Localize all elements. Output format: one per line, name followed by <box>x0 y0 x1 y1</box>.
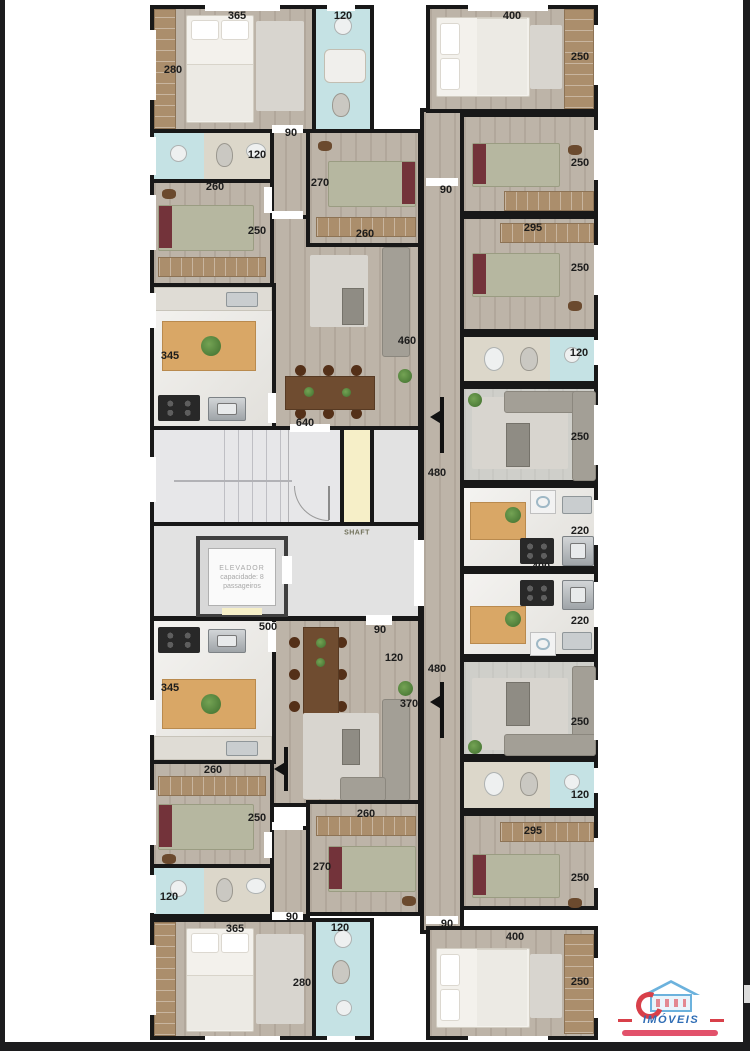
bedroom-rug <box>256 21 304 111</box>
dimension-label: 295 <box>524 222 542 234</box>
staircase <box>150 426 346 526</box>
scrollbar-thumb[interactable] <box>744 985 750 1003</box>
dimension-label: 260 <box>356 228 374 240</box>
stool <box>568 301 582 311</box>
dimension-label: 400 <box>532 561 550 573</box>
plant-icon <box>468 740 482 754</box>
dimension-label: 270 <box>311 177 329 189</box>
dimension-label: 270 <box>313 861 331 873</box>
single-bed <box>328 846 416 892</box>
bed-headboard <box>473 855 486 895</box>
window <box>594 340 602 365</box>
entry-arrow-icon <box>430 694 443 710</box>
toilet <box>216 143 233 167</box>
door-leaf <box>328 486 330 520</box>
elevator-label: ELEVADOR <box>219 565 265 572</box>
double-bed <box>436 948 530 1028</box>
door-gap <box>264 187 272 213</box>
plant-icon <box>398 681 413 696</box>
oven <box>562 580 594 610</box>
kitchen-bottom-right <box>460 570 598 658</box>
wardrobe <box>158 257 266 277</box>
stool <box>568 898 582 908</box>
dimension-label: 295 <box>524 825 542 837</box>
window <box>594 500 602 545</box>
window <box>148 30 156 100</box>
stair-rail <box>174 480 292 482</box>
pillow <box>440 954 460 986</box>
pillow <box>191 20 219 40</box>
dimension-label: 480 <box>428 663 446 675</box>
dining-table <box>303 627 339 725</box>
window <box>594 768 602 793</box>
dimension-label: 365 <box>226 923 244 935</box>
toilet <box>520 772 538 796</box>
window <box>594 405 602 465</box>
dimension-label: 220 <box>571 525 589 537</box>
bathroom-top-right <box>460 333 598 385</box>
dimension-label: 120 <box>570 347 588 359</box>
kitchen-sink <box>562 496 592 514</box>
bedroom-master-bottom-left <box>150 918 316 1040</box>
dimension-label: 250 <box>571 262 589 274</box>
toilet <box>332 93 350 117</box>
bathroom-bottom-right <box>460 758 598 812</box>
living-dining-room-top-left <box>270 215 422 430</box>
wardrobe <box>500 822 594 842</box>
door-gap <box>268 393 276 423</box>
dining-table <box>285 376 375 410</box>
bathtub <box>324 49 366 83</box>
window <box>148 875 156 913</box>
single-bed <box>328 161 416 207</box>
realtor-logo: IMÓVEIS <box>612 980 730 1042</box>
dimension-label: 260 <box>206 181 224 193</box>
dimension-label: 460 <box>398 335 416 347</box>
dimension-label: 120 <box>385 652 403 664</box>
dining-chair <box>323 365 334 376</box>
bed-headboard <box>159 805 172 847</box>
bedroom-rug <box>530 25 562 89</box>
plant-icon <box>201 336 221 356</box>
plant-icon <box>505 507 521 523</box>
double-bed <box>186 15 254 123</box>
kitchen-sink <box>562 632 592 650</box>
dimension-label: 345 <box>161 682 179 694</box>
stool <box>318 141 332 151</box>
dimension-label: 120 <box>571 789 589 801</box>
bed-headboard <box>159 206 172 248</box>
elevator: ELEVADOR capacidade: 8 passageiros <box>196 536 288 618</box>
window <box>594 958 602 1018</box>
toilet <box>216 878 233 902</box>
blanket <box>477 18 527 95</box>
dimension-label: 220 <box>571 615 589 627</box>
single-bed <box>472 854 560 898</box>
door-gap <box>414 540 424 606</box>
window <box>148 700 156 735</box>
window <box>594 130 602 180</box>
stair-wall-line <box>288 430 289 522</box>
door-gap <box>272 822 303 830</box>
stool <box>568 145 582 155</box>
dimension-label: 120 <box>248 149 266 161</box>
shower-head <box>170 145 187 162</box>
dimension-label: 250 <box>571 157 589 169</box>
dimension-label: 250 <box>571 716 589 728</box>
plant-icon <box>201 694 221 714</box>
dimension-label: 365 <box>228 10 246 22</box>
dimension-label: 280 <box>293 977 311 989</box>
stool <box>402 896 416 906</box>
elevator-capacity: capacidade: 8 <box>220 574 264 581</box>
dimension-label: 640 <box>296 417 314 429</box>
elevator-cab: ELEVADOR capacidade: 8 passageiros <box>208 548 276 606</box>
plant-icon <box>505 611 521 627</box>
plant-icon <box>468 393 482 407</box>
double-bed <box>186 928 254 1032</box>
bed-headboard <box>473 254 486 294</box>
dining-chair <box>289 637 300 648</box>
washing-machine <box>530 632 556 656</box>
dimension-label: 280 <box>164 64 182 76</box>
oven <box>208 629 246 653</box>
bedroom-rug <box>530 954 562 1018</box>
dimension-label: 90 <box>441 918 453 930</box>
tv-unit <box>506 682 530 726</box>
window <box>594 245 602 295</box>
door-swing-arc <box>294 486 329 521</box>
pillow <box>191 933 219 953</box>
sink <box>484 772 504 796</box>
living-dining-room-bottom-left <box>270 617 422 807</box>
elevator-passengers: passageiros <box>223 583 261 590</box>
plant-icon <box>316 658 325 667</box>
window <box>148 293 156 328</box>
bathroom-bottom-left-1 <box>312 918 374 1040</box>
kitchen-table <box>470 606 526 644</box>
dimension-label: 90 <box>374 624 386 636</box>
shower-head <box>336 1000 352 1016</box>
dimension-label: 500 <box>259 621 277 633</box>
wardrobe <box>500 223 594 243</box>
bed-headboard <box>402 162 415 204</box>
double-bed <box>436 17 530 97</box>
single-bed <box>472 253 560 297</box>
dimension-label: 345 <box>161 350 179 362</box>
wardrobe <box>504 191 594 211</box>
toilet <box>332 960 350 984</box>
dimension-label: 250 <box>248 812 266 824</box>
window <box>148 195 156 250</box>
pillow <box>440 989 460 1021</box>
dimension-label: 400 <box>503 10 521 22</box>
shower-head <box>564 774 580 790</box>
shaft-label: SHAFT <box>344 530 370 537</box>
elevator-sill <box>222 608 262 615</box>
stove <box>158 627 200 653</box>
tv-unit <box>506 423 530 467</box>
oven <box>208 397 246 421</box>
dining-chair <box>289 669 300 680</box>
dimension-label: 400 <box>506 931 524 943</box>
dimension-label: 250 <box>248 225 266 237</box>
blanket <box>477 949 527 1026</box>
dimension-label: 120 <box>160 891 178 903</box>
washing-machine <box>530 490 556 514</box>
landing-upper <box>370 426 422 526</box>
tv-unit <box>342 288 364 325</box>
floorplan-image: SHAFT ELEVADOR capacidade: 8 passageiros <box>0 0 750 1051</box>
elevator-door-gap <box>282 556 292 584</box>
sofa-corner <box>504 734 596 756</box>
entry-arrow-icon <box>430 409 443 425</box>
single-bed <box>158 804 254 850</box>
door-gap <box>264 832 272 858</box>
kitchen-sink <box>226 741 258 756</box>
bed-headboard <box>473 144 486 184</box>
single-bed <box>472 143 560 187</box>
wardrobe <box>158 776 266 796</box>
dining-chair <box>289 701 300 712</box>
blanket <box>187 975 253 1030</box>
dimension-label: 480 <box>428 467 446 479</box>
plant-icon <box>398 369 412 383</box>
dimension-label: 120 <box>331 922 349 934</box>
dimension-label: 370 <box>400 698 418 710</box>
entry-arrow-icon <box>440 682 444 738</box>
entry-arrow-icon <box>440 397 444 453</box>
dimension-label: 90 <box>286 911 298 923</box>
stove <box>158 395 200 421</box>
sofa-corner <box>340 777 386 801</box>
wardrobe <box>154 922 176 1036</box>
window <box>594 25 602 85</box>
central-corridor <box>420 108 464 934</box>
bathroom-top-left-1 <box>312 5 374 133</box>
dimension-label: 260 <box>357 808 375 820</box>
tv-unit <box>342 729 360 765</box>
logo-underline-bar <box>622 1030 718 1036</box>
stove <box>520 580 554 606</box>
viewport-edge-left <box>0 0 5 1051</box>
toilet <box>520 347 538 371</box>
plant-icon <box>342 388 351 397</box>
logo-flourish <box>618 1019 632 1022</box>
dining-chair <box>351 365 362 376</box>
pillow <box>221 20 249 40</box>
window <box>594 838 602 888</box>
kitchen-table <box>470 502 526 540</box>
dimension-label: 250 <box>571 872 589 884</box>
dimension-label: 250 <box>571 51 589 63</box>
dimension-label: 90 <box>285 127 297 139</box>
plant-icon <box>316 638 326 648</box>
dimension-label: 90 <box>440 184 452 196</box>
stair-treads <box>224 430 292 522</box>
oven <box>562 536 594 566</box>
stool <box>162 189 176 199</box>
window <box>148 457 156 502</box>
blanket <box>187 64 253 121</box>
living-room-bottom-right <box>460 658 598 758</box>
window <box>594 582 602 627</box>
sink <box>484 347 504 371</box>
stool <box>162 854 176 864</box>
dining-chair <box>295 365 306 376</box>
sofa <box>382 699 410 801</box>
window <box>148 790 156 845</box>
dimension-label: 250 <box>571 431 589 443</box>
scrollbar-track[interactable] <box>743 0 750 1051</box>
viewport-edge-bottom <box>0 1042 750 1051</box>
window <box>148 137 156 175</box>
window <box>594 680 602 740</box>
plant-icon <box>304 387 314 397</box>
kitchen-table <box>162 321 256 371</box>
dimension-label: 250 <box>571 976 589 988</box>
logo-flourish <box>710 1019 724 1022</box>
pillow <box>221 933 249 953</box>
door-gap <box>272 211 303 219</box>
pillow <box>440 58 460 90</box>
pillow <box>440 23 460 55</box>
dimension-label: 260 <box>204 764 222 776</box>
window <box>148 945 156 1015</box>
dimension-label: 120 <box>334 10 352 22</box>
single-bed <box>158 205 254 251</box>
sink <box>246 878 266 894</box>
kitchen-sink <box>226 292 258 307</box>
